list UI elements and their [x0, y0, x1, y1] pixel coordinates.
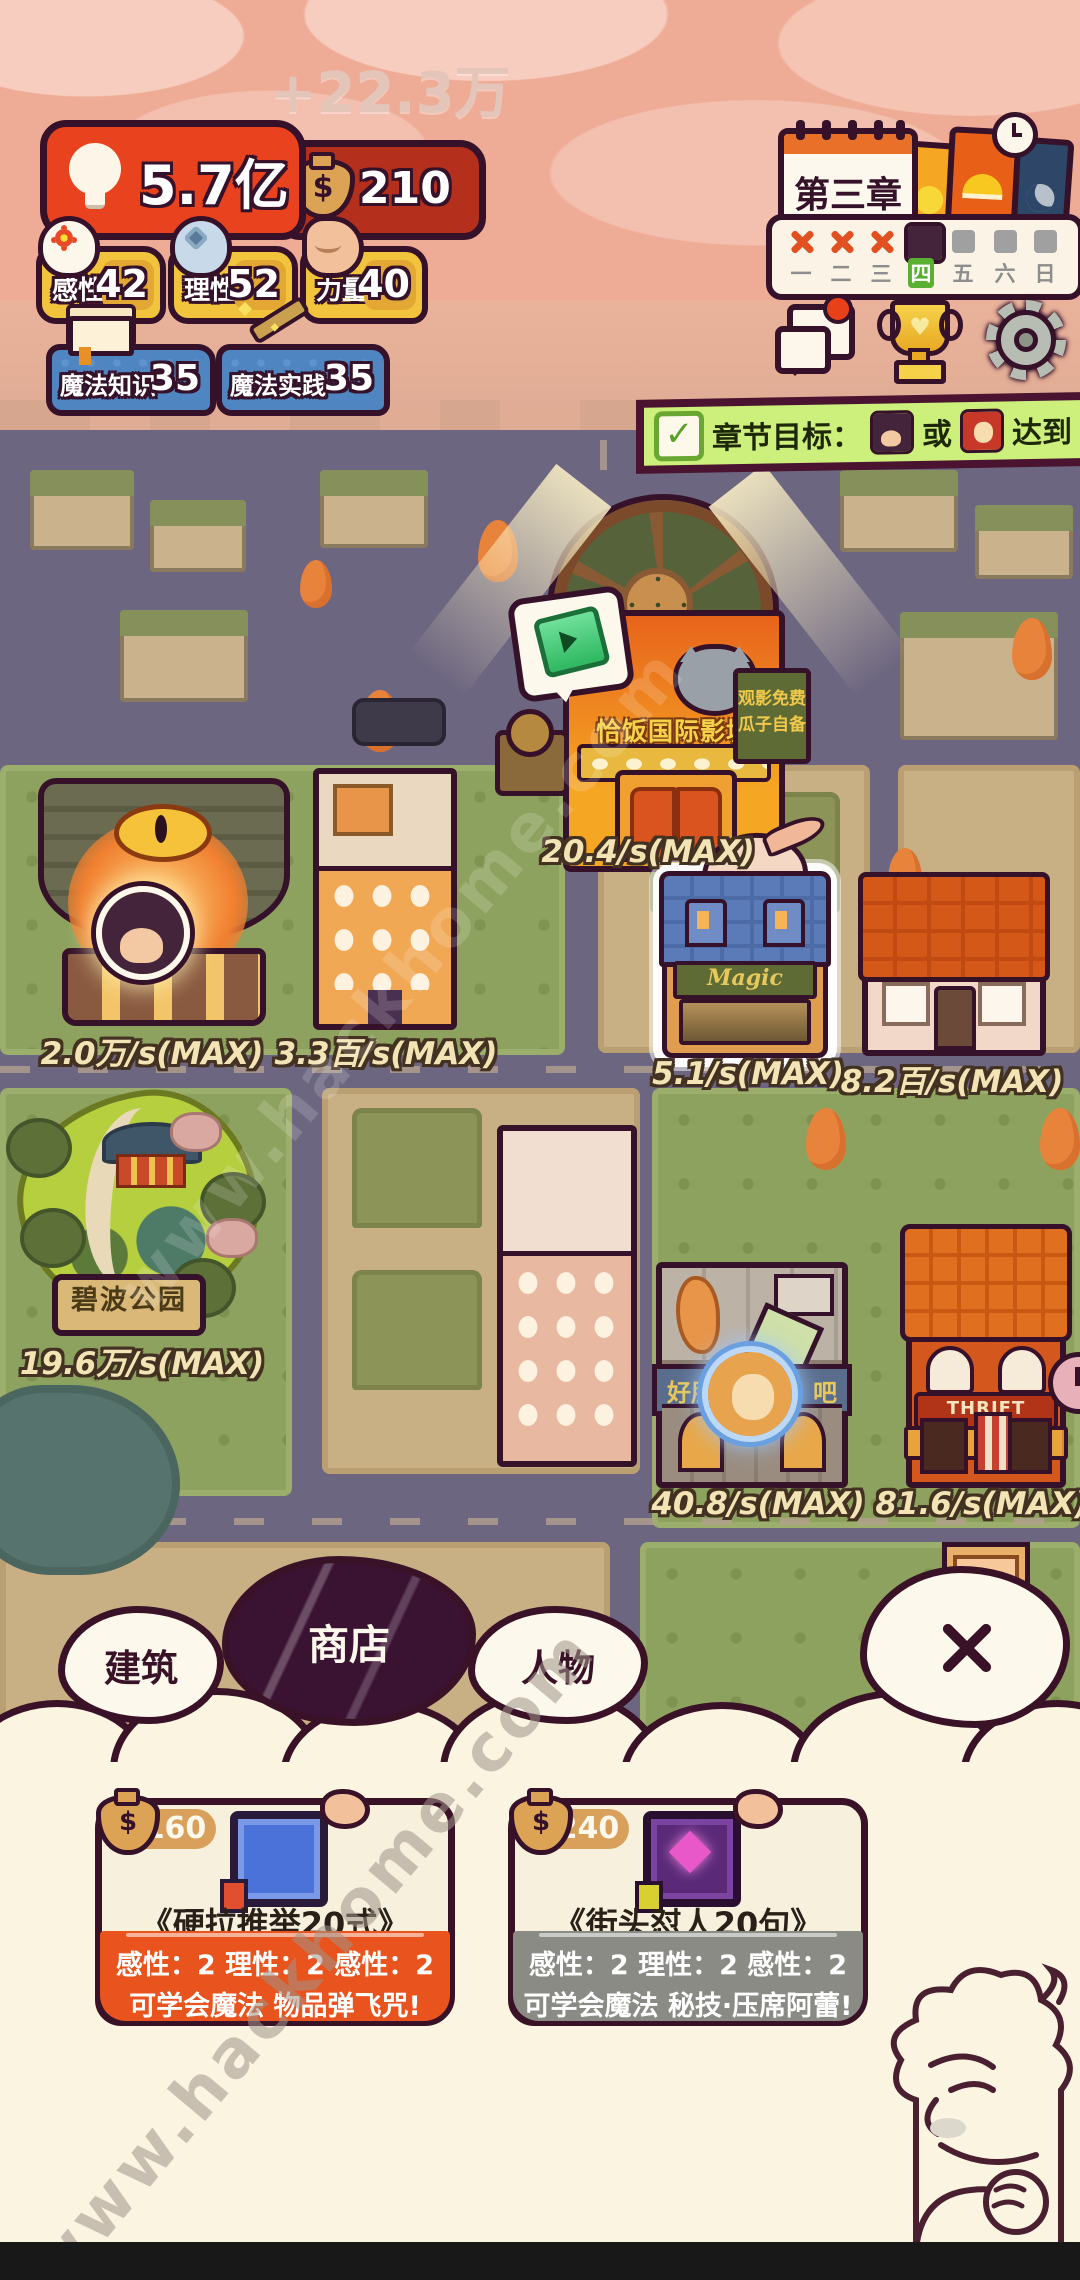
day-cell: 六 [986, 226, 1024, 288]
magic-practice-badge[interactable]: 魔法实践 35 [216, 344, 390, 416]
side-sign-line1: 观影免费 [738, 689, 806, 709]
item-effect-line: 可学会魔法 物品弹飞咒! [100, 1984, 450, 2023]
book-icon [68, 316, 134, 356]
building-house[interactable] [862, 872, 1046, 1056]
banner-text-right: 吧 [813, 1373, 837, 1408]
lightbulb-icon [69, 143, 121, 195]
character-avatar-girl[interactable] [702, 1346, 798, 1442]
future-day-square [994, 230, 1017, 253]
day-label: 一 [782, 258, 820, 288]
magic-stat-value: 35 [324, 358, 374, 399]
check-icon: ✓ [665, 414, 694, 454]
rate-label-game-bar: 40.8/s(MAX) [651, 1486, 864, 1522]
item-description: 感性：2 理性：2 感性：2 可学会魔法 物品弹飞咒! [100, 1931, 450, 2021]
pavilion-body [116, 1154, 186, 1188]
stat-value: 40 [357, 262, 410, 306]
bg-house [120, 610, 248, 702]
day-label-current: 四 [908, 258, 934, 288]
tab-label: 商店 [308, 1611, 390, 1671]
dormer-window [763, 899, 805, 947]
chapter-title: 第三章 [784, 166, 912, 218]
building-apartment[interactable] [313, 768, 457, 1030]
building-magic-shop[interactable]: Magic [662, 872, 828, 1058]
clock-icon [992, 112, 1038, 158]
hedge-house [352, 1108, 482, 1228]
game-screen: 恰饭国际影城 观影免费 瓜子自备 20.4/s(MAX) 2.0万/s(MAX)… [0, 0, 1080, 2280]
day-cell: 三 [862, 226, 900, 288]
item-description: 感性：2 理性：2 感性：2 可学会魔法 秘技·压席阿蕾! [513, 1931, 863, 2021]
chapter-calendar-card[interactable]: 第三章 [778, 128, 918, 226]
goal-checkbox: ✓ [654, 411, 704, 462]
girl-face [708, 1352, 792, 1436]
day-cell: 五 [944, 226, 982, 288]
failed-x-icon [789, 230, 813, 254]
goal-suffix: 达到 3 好感 [1012, 405, 1080, 452]
day-label: 二 [822, 258, 860, 288]
close-panel-button[interactable] [860, 1566, 1070, 1728]
goal-content: ✓ 章节目标： 或 达到 3 好感 [644, 400, 1080, 466]
shop-item-card-2[interactable]: 240 $ 《街头怼人20句》 感性：2 理性：2 感性：2 可学会魔法 秘技·… [508, 1798, 868, 2026]
rate-label-thrift: 81.6/s(MAX) [875, 1486, 1080, 1522]
future-day-square [1034, 230, 1057, 253]
bg-house [30, 470, 134, 550]
park-rocks [170, 1112, 222, 1152]
item-stats-line: 感性：2 理性：2 感性：2 [100, 1943, 450, 1982]
goal-avatar-girl [960, 408, 1004, 453]
failed-x-icon [829, 230, 853, 254]
muscle-arm-icon [320, 1789, 370, 1829]
park-tree [6, 1118, 72, 1178]
notification-dot [823, 294, 853, 324]
money-value: 210 [359, 163, 451, 214]
mentor-character-art [856, 1950, 1080, 2250]
bg-house [150, 500, 246, 572]
magic-stat-label: 魔法实践 [230, 366, 326, 401]
girl-face [963, 412, 1001, 451]
avatar-face [908, 226, 942, 260]
stat-value: 52 [227, 262, 280, 306]
car [352, 698, 446, 746]
roof-deck [503, 1131, 631, 1256]
day-cell-current: 四 [902, 226, 940, 288]
day-cell: 二 [822, 226, 860, 288]
calendar-pin [874, 120, 883, 140]
day-label: 日 [1026, 258, 1064, 288]
moon-icon [1025, 183, 1055, 213]
window [978, 982, 1026, 1026]
future-day-square [952, 230, 975, 253]
sunset-icon [962, 173, 1003, 200]
apartment-windows [325, 874, 445, 990]
tab-characters[interactable]: 人物 [468, 1606, 648, 1724]
stat-value: 42 [95, 262, 148, 306]
film-projector [495, 730, 569, 796]
goal-avatar-boy [870, 410, 914, 455]
tab-label: 建筑 [104, 1638, 178, 1692]
achievements-button[interactable]: ♥ [884, 300, 948, 384]
park-sign: 碧波公园 [52, 1274, 206, 1336]
side-sign-line2: 瓜子自备 [738, 715, 806, 735]
muscle-arm-icon [302, 216, 364, 278]
energy-value: 5.7亿 [139, 141, 289, 220]
apartment-door [368, 990, 402, 1024]
tab-shop-selected[interactable]: 商店 [222, 1556, 476, 1726]
calendar-pin [796, 120, 805, 140]
building-cinema[interactable]: 恰饭国际影城 观影免费 瓜子自备 [525, 500, 785, 870]
dollar-glyph: $ [313, 170, 334, 205]
trophy-base [894, 360, 946, 384]
day-label: 五 [944, 258, 982, 288]
storefront-window [679, 999, 811, 1045]
bg-house [320, 470, 428, 548]
speech-bubble-icon [775, 326, 831, 374]
dormer-window [685, 899, 727, 947]
apartment-windows [509, 1261, 625, 1427]
dollar-glyph: $ [119, 1807, 137, 1837]
character-avatar-boy[interactable] [96, 886, 190, 980]
calendar-pin [848, 120, 857, 140]
roof-hut [333, 784, 393, 836]
day-label: 三 [862, 258, 900, 288]
speech-bubble[interactable] [506, 584, 635, 703]
day-cell: 一 [782, 226, 820, 288]
magic-knowledge-badge[interactable]: 魔法知识 35 [46, 344, 216, 416]
boy-face [873, 413, 911, 452]
chapter-goal-banner[interactable]: ✓ 章节目标： 或 达到 3 好感 [636, 392, 1080, 474]
window [882, 982, 930, 1026]
bg-house [975, 505, 1073, 579]
tab-buildings[interactable]: 建筑 [58, 1606, 224, 1724]
day-cell: 日 [1026, 226, 1064, 288]
dollar-glyph: $ [532, 1807, 550, 1837]
day-label: 六 [986, 258, 1024, 288]
building-park[interactable]: 碧波公园 [10, 1088, 260, 1338]
sun-icon [914, 185, 944, 215]
flower-glyph [55, 229, 73, 247]
window [926, 1346, 974, 1394]
shop-item-card-1[interactable]: 160 $ 《硬拉推举20式》 感性：2 理性：2 感性：2 可学会魔法 物品弹… [95, 1798, 455, 2026]
close-icon [938, 1620, 992, 1674]
stat-badge-strength[interactable]: 力量 40 [300, 246, 428, 324]
park-rocks [206, 1218, 258, 1258]
chat-button[interactable] [775, 302, 849, 380]
rate-label-shrine: 2.0万/s(MAX) [41, 1028, 264, 1073]
thrift-roof [900, 1224, 1072, 1342]
thrift-door [974, 1412, 1012, 1474]
park-tree [20, 1208, 86, 1268]
week-progress-bar[interactable]: 一 二 三 四 五 六 日 [766, 214, 1080, 300]
bookmark [79, 347, 91, 365]
goal-connector: 或 [922, 409, 952, 454]
video-play-icon [532, 605, 611, 679]
rate-label-cinema: 20.4/s(MAX) [541, 834, 754, 870]
pink-apartment[interactable] [497, 1125, 637, 1467]
clock-hand-hour [1012, 133, 1022, 137]
arm-line [315, 237, 341, 253]
hedge-house [352, 1270, 482, 1390]
purple-book-icon [643, 1811, 741, 1907]
magic-stat-value: 35 [150, 358, 200, 399]
gear-glyph [183, 225, 208, 250]
window [998, 1346, 1046, 1394]
rate-label-apartment: 3.3百/s(MAX) [275, 1028, 498, 1073]
blue-book-icon [230, 1811, 328, 1907]
calendar-pin [896, 120, 905, 140]
house-door [934, 986, 976, 1050]
magic-stat-label: 魔法知识 [60, 366, 156, 401]
tab-label: 人物 [521, 1638, 595, 1692]
rate-label-park: 19.6万/s(MAX) [20, 1338, 264, 1383]
item-effect-line: 可学会魔法 秘技·压席阿蕾! [513, 1984, 863, 2023]
muscle-arm-icon [733, 1789, 783, 1829]
eye-emblem [114, 804, 212, 862]
flower-head-icon [38, 216, 100, 278]
failed-x-icon [869, 230, 893, 254]
gear-head-icon [170, 216, 232, 278]
rate-label-magic-shop: 5.1/s(MAX) [652, 1056, 844, 1092]
stat-badge-sensibility[interactable]: 感性 42 [36, 246, 166, 324]
rate-label-house: 8.2百/s(MAX) [841, 1056, 1064, 1101]
item-stats-line: 感性：2 理性：2 感性：2 [513, 1943, 863, 1982]
android-navigation-bar [0, 2242, 1080, 2280]
cinema-side-sign: 观影免费 瓜子自备 [733, 668, 811, 764]
bg-house [840, 470, 958, 552]
magic-shop-sign: Magic [673, 961, 817, 999]
settings-button[interactable] [986, 300, 1066, 380]
building-thrift-shop[interactable]: THRIFT SHOP [906, 1228, 1066, 1488]
calendar-pin [822, 120, 831, 140]
goal-prefix: 章节目标： [712, 411, 862, 458]
floating-gain-text: +22.3万 [230, 48, 550, 129]
display-window [920, 1418, 968, 1474]
boy-face [102, 892, 184, 974]
house-roof [858, 872, 1050, 982]
